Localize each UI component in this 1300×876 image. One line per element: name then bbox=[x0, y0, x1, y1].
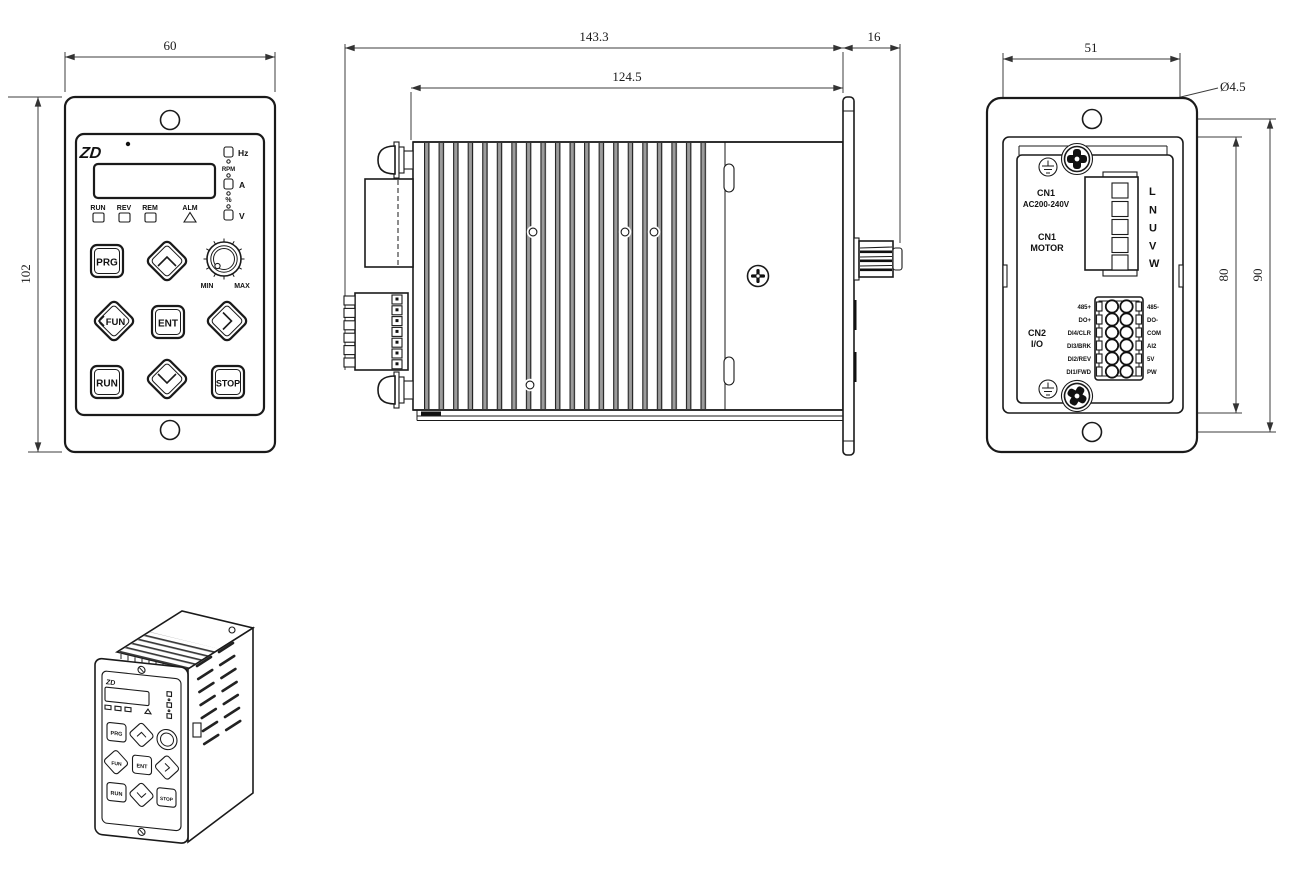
rear-screw-bottom bbox=[378, 372, 413, 408]
back-width-dim: 51 bbox=[1085, 40, 1098, 55]
iso-view: ZD PRG FUN ENT bbox=[95, 611, 253, 844]
cn2-label-1: CN2 bbox=[1028, 328, 1046, 338]
clip-bottom bbox=[724, 357, 734, 385]
cn1-connector-side bbox=[365, 179, 413, 267]
iso-top-screw bbox=[229, 627, 235, 633]
side-front-panel bbox=[843, 97, 902, 455]
iso-fun-label: FUN bbox=[111, 761, 122, 768]
led-rem-label: REM bbox=[142, 205, 158, 212]
back-holes-dim: 90 bbox=[1250, 269, 1265, 282]
unit-rpm-label: RPM bbox=[222, 167, 235, 173]
io-pw-label: PW bbox=[1147, 370, 1157, 376]
iso-front-panel: ZD PRG FUN ENT bbox=[95, 658, 188, 844]
prg-key[interactable]: PRG bbox=[91, 245, 123, 277]
iso-keypad: PRG FUN ENT RUN STOP bbox=[103, 718, 179, 811]
terminal-v-label: V bbox=[1149, 241, 1157, 253]
terminal-u-label: U bbox=[1149, 223, 1157, 235]
power-terminal-block: L N U V W bbox=[1085, 172, 1160, 276]
run-key[interactable]: RUN bbox=[91, 366, 123, 398]
unit-hz-label: Hz bbox=[238, 148, 248, 158]
stop-key[interactable]: STOP bbox=[212, 366, 244, 398]
keypad: PRG MIN MAX bbox=[91, 239, 250, 401]
led-alm-label: ALM bbox=[182, 205, 197, 212]
terminal-l-label: L bbox=[1149, 186, 1156, 198]
front-top-screw-hole bbox=[161, 111, 180, 130]
cn1-motor-label-2: MOTOR bbox=[1030, 243, 1064, 253]
rear-screw-top bbox=[378, 142, 413, 178]
hole-diameter-dim: Ø4.5 bbox=[1220, 79, 1246, 94]
side-chassis bbox=[413, 142, 843, 421]
led-run-label: RUN bbox=[90, 205, 105, 212]
prg-key-label: PRG bbox=[96, 258, 118, 269]
front-height-dim: 102 bbox=[18, 264, 33, 284]
ground-symbol-bottom bbox=[1039, 380, 1057, 398]
cn2-pins-side bbox=[392, 295, 402, 369]
panel-slot-bottom bbox=[854, 352, 857, 382]
io-485m-label: 485- bbox=[1147, 305, 1159, 311]
unit-percent-label: % bbox=[225, 197, 232, 204]
knob-max-label: MAX bbox=[234, 283, 250, 290]
io-di2-label: DI2/REV bbox=[1068, 357, 1091, 363]
ground-symbol-top bbox=[1039, 158, 1057, 176]
ent-key[interactable]: ENT bbox=[152, 306, 184, 338]
io-com-label: COM bbox=[1147, 331, 1161, 337]
side-rear-connectors bbox=[344, 142, 413, 408]
unit-a-label: A bbox=[239, 180, 245, 190]
side-overall-dim: 143.3 bbox=[579, 29, 608, 44]
knob-min-label: MIN bbox=[201, 283, 214, 290]
back-top-hole bbox=[1083, 110, 1102, 129]
body-notch-left bbox=[1003, 265, 1007, 287]
terminal-n-label: N bbox=[1149, 205, 1157, 217]
side-view: 143.3 16 124.5 bbox=[344, 29, 902, 455]
clip-top bbox=[724, 164, 734, 192]
io-5v-label: 5V bbox=[1147, 357, 1154, 363]
fun-key-label: FUN bbox=[106, 317, 126, 328]
base-lip bbox=[417, 410, 843, 421]
io-di1-label: DI1/FWD bbox=[1066, 370, 1091, 376]
front-width-dim: 60 bbox=[164, 38, 177, 53]
knob-indicator-dot bbox=[215, 263, 220, 268]
logo-text: ZD bbox=[78, 144, 103, 162]
back-bottom-hole bbox=[1083, 423, 1102, 442]
case-screw bbox=[748, 266, 769, 287]
body-notch-right bbox=[1179, 265, 1183, 287]
led-rev-label: REV bbox=[117, 205, 132, 212]
logo-star bbox=[126, 142, 130, 146]
iso-run-label: RUN bbox=[111, 791, 123, 798]
iso-ent-label: ENT bbox=[137, 763, 149, 770]
io-dom-label: DO- bbox=[1147, 318, 1158, 324]
knob-side bbox=[854, 238, 902, 280]
display-window bbox=[94, 164, 215, 198]
terminal-w-label: W bbox=[1149, 258, 1160, 270]
io-ai2-label: AI2 bbox=[1147, 344, 1157, 350]
back-view: 51 Ø4.5 80 90 bbox=[987, 40, 1276, 452]
io-dop-label: DO+ bbox=[1078, 318, 1091, 324]
cn2-label-2: I/O bbox=[1031, 339, 1043, 349]
panel-slot-top bbox=[854, 300, 857, 330]
io-485p-label: 485+ bbox=[1077, 305, 1091, 311]
front-bottom-screw-hole bbox=[161, 421, 180, 440]
cn2-connector-side bbox=[344, 293, 408, 370]
io-di4-label: DI4/CLR bbox=[1068, 331, 1092, 337]
io-di3-label: DI3/BRK bbox=[1067, 344, 1092, 350]
panel-edge bbox=[843, 97, 854, 455]
drawing-canvas: 60 102 ZD Hz RPM A % bbox=[0, 0, 1300, 876]
front-view: 60 102 ZD Hz RPM A % bbox=[8, 38, 275, 452]
iso-logo-text: ZD bbox=[105, 679, 115, 687]
cn1-power-label-1: CN1 bbox=[1037, 188, 1055, 198]
stop-key-label: STOP bbox=[216, 379, 240, 389]
run-key-label: RUN bbox=[96, 379, 118, 390]
unit-v-label: V bbox=[239, 211, 245, 221]
cn1-power-label-2: AC200-240V bbox=[1023, 200, 1070, 209]
heatsink-fins bbox=[424, 143, 715, 409]
iso-side-notch bbox=[193, 723, 201, 737]
ent-key-label: ENT bbox=[158, 319, 178, 330]
cn1-motor-label-1: CN1 bbox=[1038, 232, 1056, 242]
side-front-dim: 16 bbox=[868, 29, 882, 44]
iso-prg-label: PRG bbox=[111, 731, 123, 738]
back-top-screw bbox=[1062, 144, 1093, 175]
side-body-dim: 124.5 bbox=[612, 69, 641, 84]
iso-unit-indicators bbox=[167, 692, 172, 719]
back-cutout-dim: 80 bbox=[1216, 269, 1231, 282]
